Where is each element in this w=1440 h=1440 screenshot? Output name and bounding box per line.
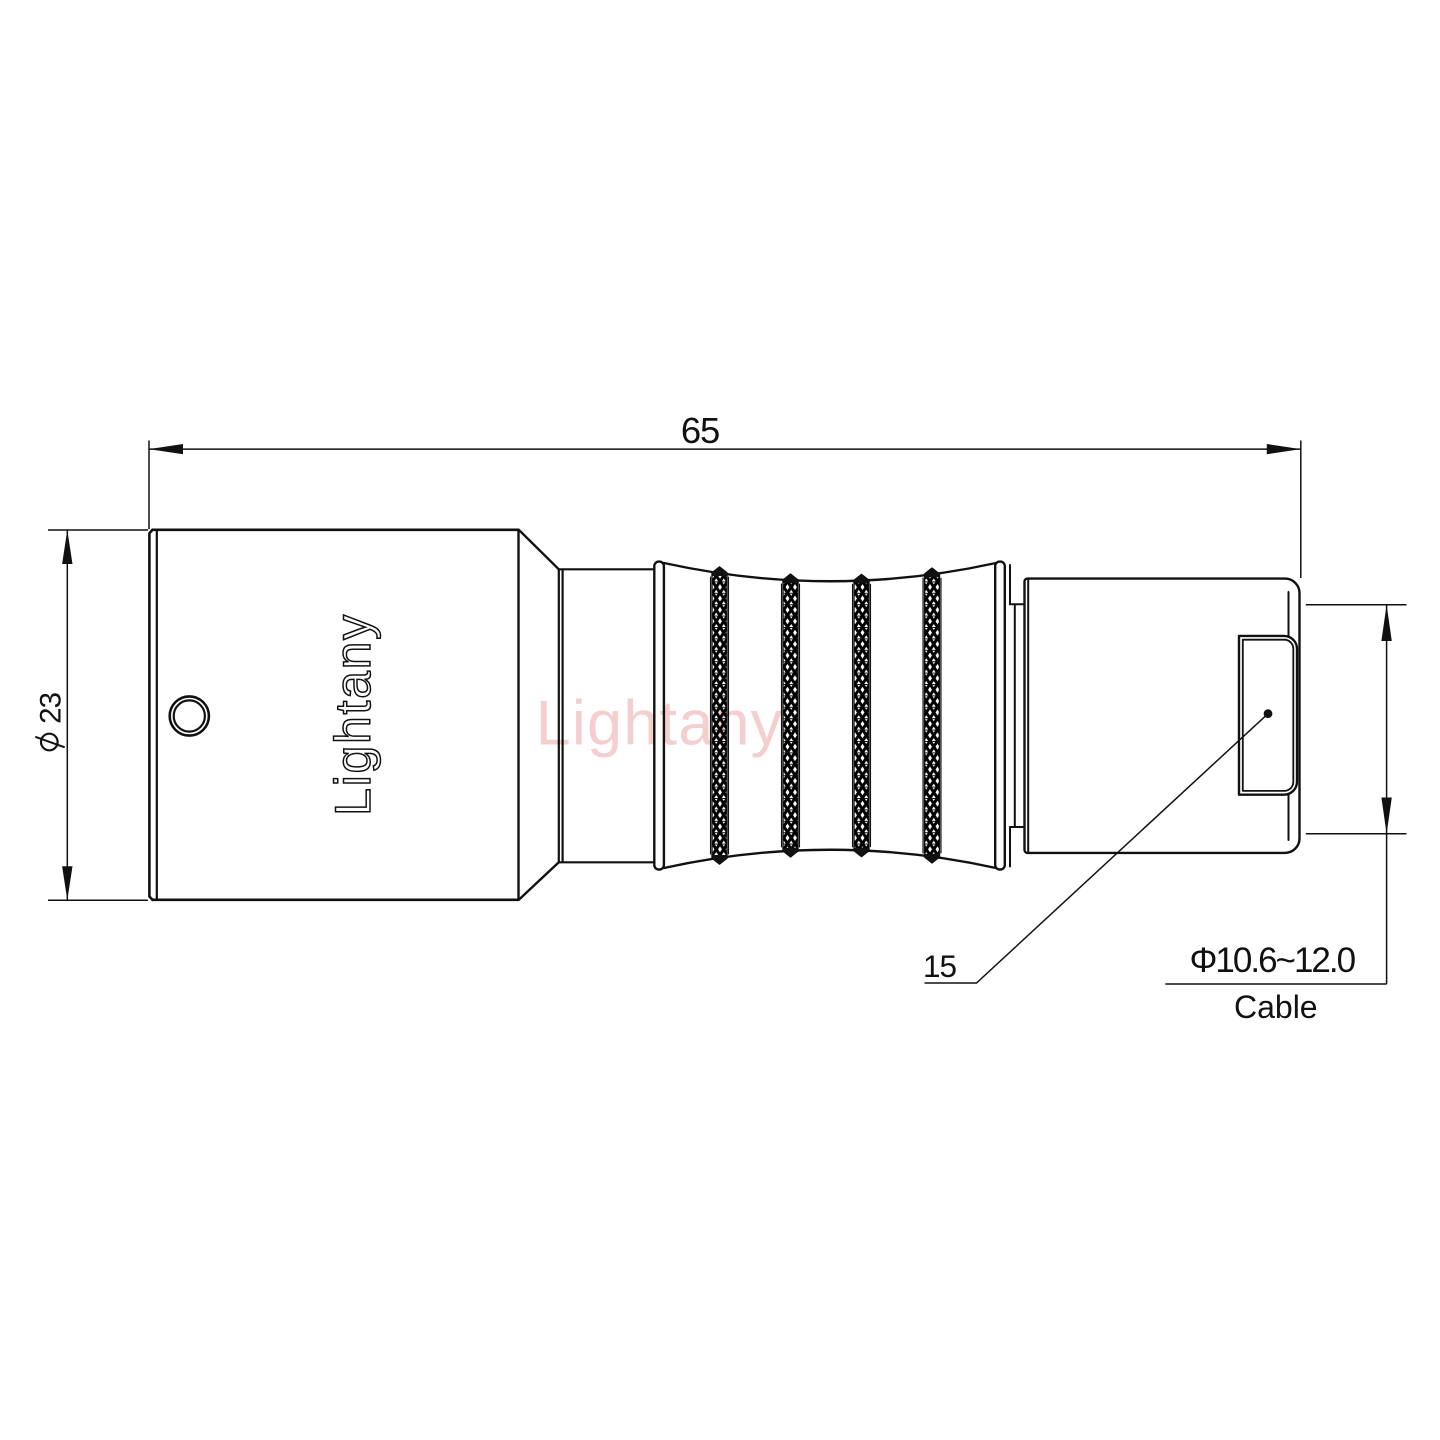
- svg-text:23: 23: [35, 692, 68, 723]
- svg-text:Lightany: Lightany: [325, 613, 381, 816]
- svg-text:65: 65: [681, 410, 719, 451]
- svg-text:15: 15: [923, 948, 957, 984]
- svg-text:Φ10.6~12.0: Φ10.6~12.0: [1189, 941, 1355, 980]
- svg-text:Cable: Cable: [1234, 989, 1318, 1025]
- svg-text:Lightany: Lightany: [536, 689, 784, 759]
